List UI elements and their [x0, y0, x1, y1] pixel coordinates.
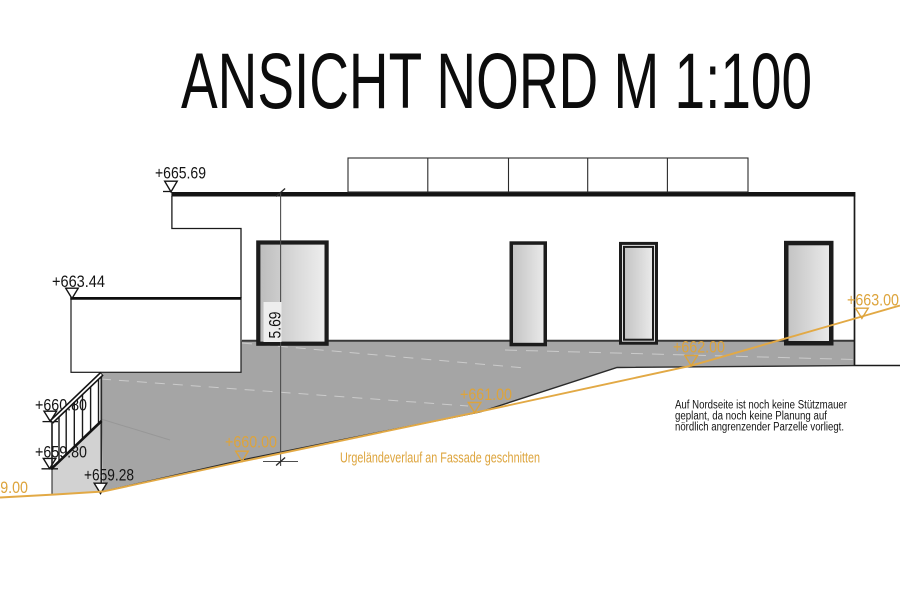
svg-text:+662.00: +662.00	[673, 339, 725, 357]
svg-text:+659.00: +659.00	[0, 479, 28, 497]
svg-text:+663.00: +663.00	[847, 292, 899, 310]
svg-text:+665.69: +665.69	[155, 165, 206, 183]
svg-text:+659.28: +659.28	[84, 467, 134, 485]
svg-text:+660.00: +660.00	[225, 434, 277, 452]
svg-text:5.69: 5.69	[267, 312, 285, 339]
svg-text:Urgeländeverlauf an Fassade ge: Urgeländeverlauf an Fassade geschnitten	[340, 450, 540, 467]
svg-text:+661.00: +661.00	[460, 386, 512, 404]
svg-text:nördlich angrenzender Parzelle: nördlich angrenzender Parzelle vorliegt.	[675, 422, 844, 434]
svg-text:ANSICHT NORD M 1:100: ANSICHT NORD M 1:100	[181, 36, 812, 125]
